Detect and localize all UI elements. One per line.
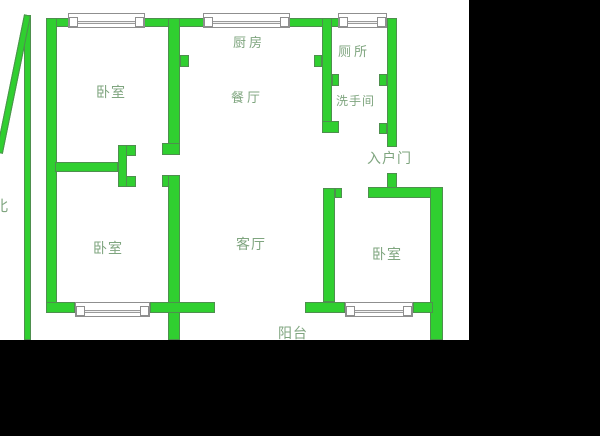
north-label: 北 (0, 199, 8, 214)
wall-divider-cap-arm-bottom (126, 176, 136, 187)
wall-toilet-stub-right (332, 74, 339, 86)
wall-divider-cap-arm-top (126, 145, 136, 156)
wall-right-top (387, 18, 397, 147)
wall-bottom-b (150, 302, 215, 313)
room-label-bedroom-right: 卧室 (372, 248, 402, 262)
wall-stub-kitchen (180, 55, 189, 67)
wall-toilet-foot (322, 121, 339, 133)
wall-bedroom-divider (55, 162, 118, 172)
window-bedroom-top-left (68, 13, 145, 28)
room-label-entry-door: 入户门 (367, 152, 412, 166)
wall-entry-stub (387, 173, 397, 188)
letterbox-bottom (0, 340, 600, 436)
wall-toilet-left (322, 18, 332, 133)
wall-bottom-d (413, 302, 433, 313)
room-label-kitchen: 厨房 (233, 37, 265, 50)
window-kitchen (203, 13, 290, 28)
room-label-washroom: 洗手间 (336, 95, 375, 107)
room-label-balcony: 阳台 (278, 327, 308, 340)
room-label-toilet: 厕所 (338, 46, 370, 59)
wall-middle-upper (168, 18, 180, 155)
wall-toilet-stub-left (314, 55, 322, 67)
wall-middle-lower (168, 175, 180, 340)
window-bedroom-right (345, 302, 413, 317)
room-label-bedroom-bottom-left: 卧室 (93, 242, 123, 256)
wall-bedroom-right-left-stub (335, 188, 342, 198)
wall-right-outer (430, 187, 443, 340)
room-label-dining: 餐厅 (231, 92, 263, 105)
wall-bottom-c (305, 302, 345, 313)
wall-bottom-a (46, 302, 75, 313)
wall-middle-upper-foot (162, 143, 180, 155)
room-label-living: 客厅 (236, 238, 266, 252)
wall-right-stub-door (379, 123, 387, 134)
floorplan-canvas: 北 卧室 厨房 (0, 0, 469, 340)
wall-bedroom-right-left (323, 188, 335, 302)
window-bedroom-bottom-left (75, 302, 150, 317)
window-toilet (338, 13, 387, 28)
room-label-bedroom-top-left: 卧室 (96, 86, 126, 100)
north-arrow-shaft (24, 15, 31, 340)
wall-right-stub-washroom (379, 74, 387, 86)
floorplan-screenshot: 北 卧室 厨房 (0, 0, 600, 436)
